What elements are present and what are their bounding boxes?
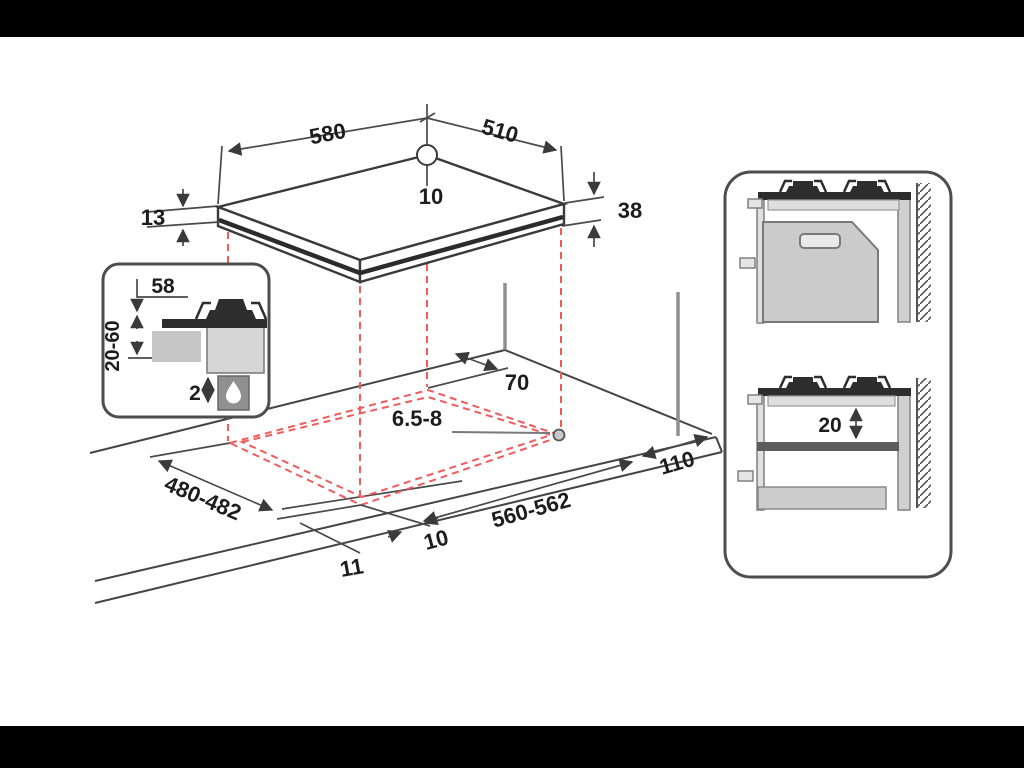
dim-13: 13 (141, 189, 219, 246)
letterbox-top (0, 0, 1024, 37)
hob-surface-bar (758, 388, 911, 396)
dim-cutout-front: 10 (421, 525, 451, 555)
drawer-front (758, 487, 886, 509)
drawing-canvas: 580 510 10 13 38 (0, 37, 1024, 727)
inset-burner-body (207, 326, 264, 373)
dim-70: 70 (428, 354, 529, 395)
fixing-clip (748, 395, 762, 404)
hob-surface-bar (758, 192, 911, 200)
dim-hob-rim: 13 (141, 205, 165, 230)
fixing-hole (554, 430, 565, 441)
letterbox-bottom (0, 726, 1024, 768)
screenshot-stage: 580 510 10 13 38 (0, 0, 1024, 768)
gas-connection-stub (738, 471, 753, 481)
dim-cutout-width: 560-562 (489, 487, 573, 533)
hob-isometric (218, 155, 564, 282)
dim-inset-top: 58 (151, 275, 175, 298)
dim-38: 38 (562, 172, 642, 247)
dim-shelf-clearance: 20 (818, 414, 841, 437)
gas-connection-stub (740, 258, 755, 268)
dim-560-562: 560-562 (361, 462, 632, 533)
dim-hob-depth: 510 (479, 114, 521, 148)
dim-cutout-rear: 70 (505, 370, 529, 395)
dim-hole: 6.5-8 (392, 406, 550, 433)
inset-worktop-block (152, 331, 201, 362)
dim-hob-rear-offset: 10 (419, 184, 443, 209)
shelf-bar (757, 442, 899, 451)
dim-cutout-hole: 6.5-8 (392, 406, 442, 431)
oven-vent (800, 234, 840, 248)
hob-rear-reference-circle (417, 145, 437, 165)
dim-cutout-depth: 480-482 (161, 471, 245, 526)
dim-hob-width: 580 (307, 118, 348, 150)
detail-inset: 58 20-60 2 (102, 264, 269, 417)
dim-inset-worktop: 20-60 (102, 320, 124, 371)
dim-inset-gap: 2 (189, 382, 201, 405)
installation-diagram: 580 510 10 13 38 (0, 37, 1024, 727)
wall-hatching (918, 183, 931, 322)
dim-hob-height: 38 (618, 198, 642, 223)
wall-hatching (918, 378, 931, 508)
section-above-oven (740, 181, 931, 323)
side-section-panel: 20 (725, 172, 951, 577)
dim-cutout-edge: 11 (338, 553, 365, 582)
fixing-clip (748, 199, 762, 208)
inset-hob-surface (162, 319, 267, 328)
